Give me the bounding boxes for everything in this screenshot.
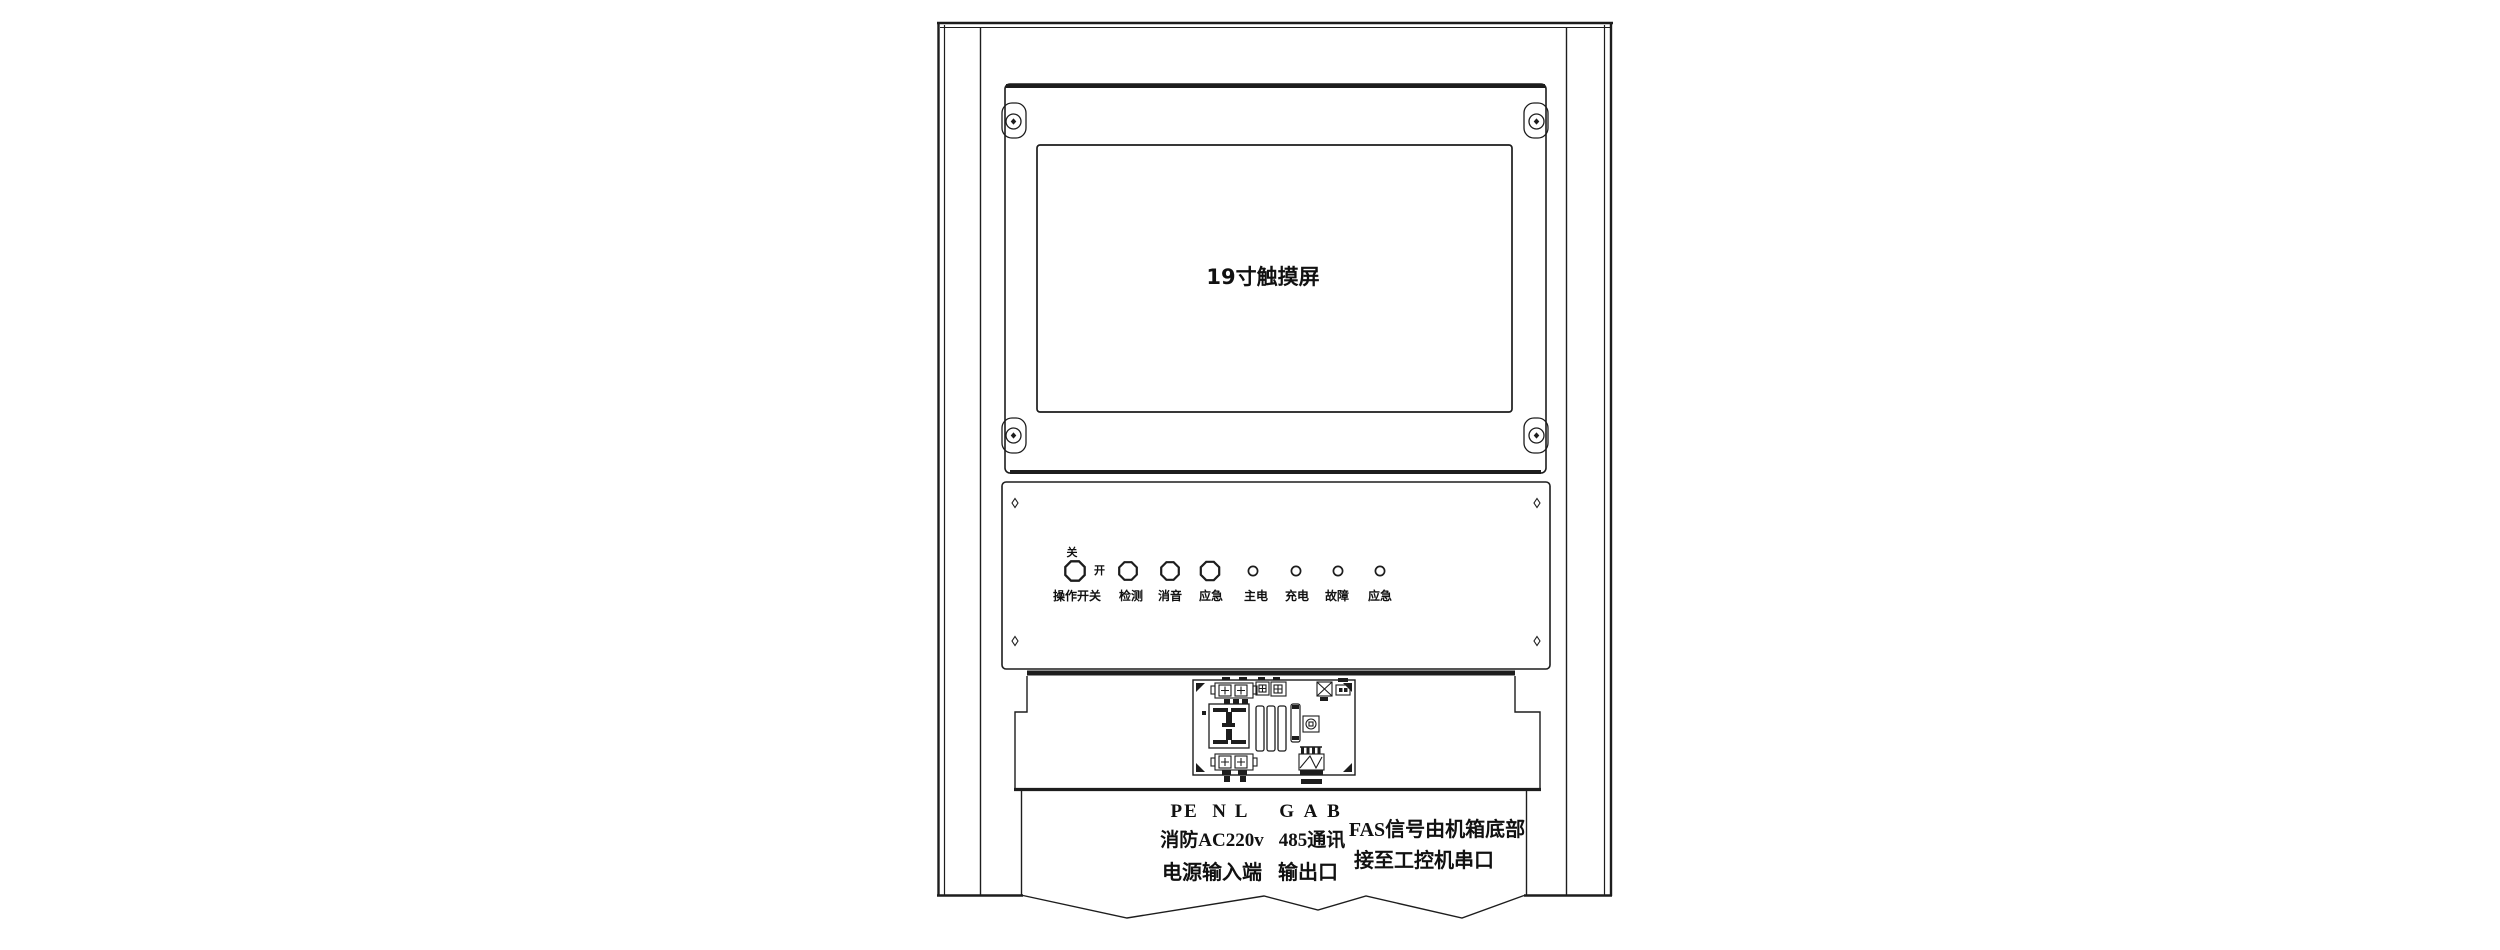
transformer-core — [1226, 729, 1232, 740]
screw-slot-icon — [1011, 118, 1017, 124]
connector-brace — [1317, 682, 1332, 696]
capacitor — [1267, 706, 1275, 751]
terminal-pin — [1233, 699, 1239, 704]
terminal-tab — [1211, 686, 1215, 694]
terminal-pin-below — [1224, 776, 1230, 782]
tray-right-step-outline — [1515, 676, 1540, 788]
screw-slot-icon — [1011, 432, 1017, 438]
cabinet-elevation-drawing: 19寸触摸屏 关 开 操作开关 检测 消音 应急 主电 充电 故障 应急 — [0, 0, 2500, 950]
terminal-tab — [1211, 758, 1215, 766]
corner-screw-icon — [1534, 499, 1540, 508]
solder-mark — [1338, 678, 1348, 682]
connector-foot — [1301, 779, 1322, 784]
terminal-pin — [1320, 697, 1328, 701]
charge-led — [1291, 566, 1300, 575]
pcb-test-pad — [1202, 711, 1206, 715]
pcb-capacitor-bank — [1256, 706, 1286, 751]
transformer-core-cap — [1222, 723, 1235, 727]
terminal-pin — [1238, 770, 1247, 775]
emergency-led-label: 应急 — [1368, 588, 1392, 603]
fas-note-line2: 接至工控机串口 — [1354, 848, 1494, 872]
mute-label: 消音 — [1158, 588, 1182, 603]
connector-pin — [1307, 747, 1310, 754]
pcb-tray-section — [1014, 676, 1541, 790]
comm-terminal-line1: 485通讯 — [1279, 829, 1346, 851]
transformer-core — [1226, 712, 1232, 723]
solder-mark — [1239, 677, 1247, 681]
terminal-label-strip: PE N L 消防AC220v 电源输入端 G A B 485通讯 输出口 FA… — [1022, 790, 1527, 895]
pcb-serial-connector — [1299, 747, 1324, 784]
corner-screw-icon — [1534, 637, 1540, 646]
pcb-corner-mark — [1343, 763, 1352, 772]
mute-button — [1161, 562, 1179, 580]
solder-mark — [1222, 677, 1230, 681]
terminal-cross — [1221, 758, 1245, 766]
transformer-winding — [1213, 708, 1228, 712]
mounting-ear-bottom-right — [1524, 418, 1548, 453]
pcb-bottom-terminal-block — [1211, 754, 1257, 782]
pcb-relay — [1291, 704, 1300, 742]
break-line-zigzag — [1023, 896, 1524, 919]
capacitor — [1256, 706, 1264, 751]
detect-label: 检测 — [1119, 588, 1143, 603]
connector-brace — [1300, 756, 1322, 768]
connector-base — [1300, 770, 1323, 775]
corner-screw-icon — [1012, 499, 1018, 508]
fault-label: 故障 — [1325, 588, 1349, 603]
pcb-transformer — [1209, 704, 1249, 748]
transformer-winding — [1213, 740, 1228, 744]
pcb-buzzer — [1303, 716, 1319, 732]
corner-screw-icon — [1012, 637, 1018, 646]
terminal-tab — [1253, 758, 1257, 766]
power-terminal-pins: PE N L — [1171, 801, 1250, 822]
comm-terminal-pins: G A B — [1279, 801, 1343, 822]
connector-cross — [1259, 685, 1266, 692]
tray-left-step-outline — [1015, 676, 1027, 788]
buzzer-center — [1309, 722, 1313, 726]
drawing-canvas: 19寸触摸屏 关 开 操作开关 检测 消音 应急 主电 充电 故障 应急 — [0, 0, 2500, 950]
solder-mark — [1273, 677, 1280, 681]
pcb-board — [1193, 677, 1355, 784]
connector-pin — [1301, 747, 1304, 754]
power-terminal-line2: 电源输入端 — [1162, 860, 1262, 884]
connector-pin — [1318, 747, 1321, 754]
fas-note-line1: FAS信号由机箱底部 — [1349, 817, 1525, 841]
connector-body — [1299, 754, 1324, 770]
pcb-top-terminal-block — [1211, 677, 1257, 704]
emergency-button — [1201, 562, 1219, 580]
connector-dot — [1344, 688, 1348, 692]
connector-dot — [1339, 688, 1343, 692]
mounting-ear-top-right — [1524, 103, 1548, 138]
relay-mark — [1292, 705, 1299, 709]
operation-switch-label: 操作开关 — [1053, 588, 1101, 603]
pcb-corner-mark — [1196, 683, 1205, 692]
terminal-cross — [1221, 687, 1245, 695]
buzzer-body — [1303, 716, 1319, 732]
operation-switch-button — [1065, 561, 1084, 580]
transformer-winding — [1231, 740, 1246, 744]
solder-mark — [1258, 677, 1265, 681]
relay-mark — [1292, 736, 1299, 740]
touchscreen-label: 19寸触摸屏 — [1206, 265, 1319, 289]
switch-off-label: 关 — [1067, 545, 1078, 559]
terminal-pin — [1222, 770, 1231, 775]
buzzer-opening — [1306, 719, 1316, 729]
connector-pin — [1312, 747, 1315, 754]
terminal-pin — [1224, 699, 1230, 704]
screw-slot-icon — [1534, 432, 1540, 438]
terminal-pin-below — [1240, 776, 1246, 782]
fault-led — [1333, 566, 1342, 575]
power-terminal-line1: 消防AC220v — [1160, 828, 1264, 851]
main-power-label: 主电 — [1244, 588, 1268, 603]
transformer-winding — [1231, 708, 1246, 712]
main-power-led — [1248, 566, 1257, 575]
switch-on-label: 开 — [1094, 564, 1105, 577]
screw-slot-icon — [1534, 118, 1540, 124]
connector-cross — [1274, 685, 1282, 693]
capacitor — [1278, 706, 1286, 751]
touchscreen-bezel-panel: 19寸触摸屏 — [1002, 84, 1548, 473]
emergency-button-label: 应急 — [1199, 588, 1223, 603]
pcb-top-connector-4 — [1317, 682, 1332, 701]
control-panel: 关 开 操作开关 检测 消音 应急 主电 充电 故障 应急 — [1002, 482, 1550, 673]
comm-terminal-line2: 输出口 — [1278, 860, 1338, 884]
terminal-pin — [1242, 699, 1248, 704]
pcb-corner-mark — [1196, 763, 1205, 772]
emergency-led — [1375, 566, 1384, 575]
detect-button — [1119, 562, 1137, 580]
charge-label: 充电 — [1285, 588, 1309, 603]
